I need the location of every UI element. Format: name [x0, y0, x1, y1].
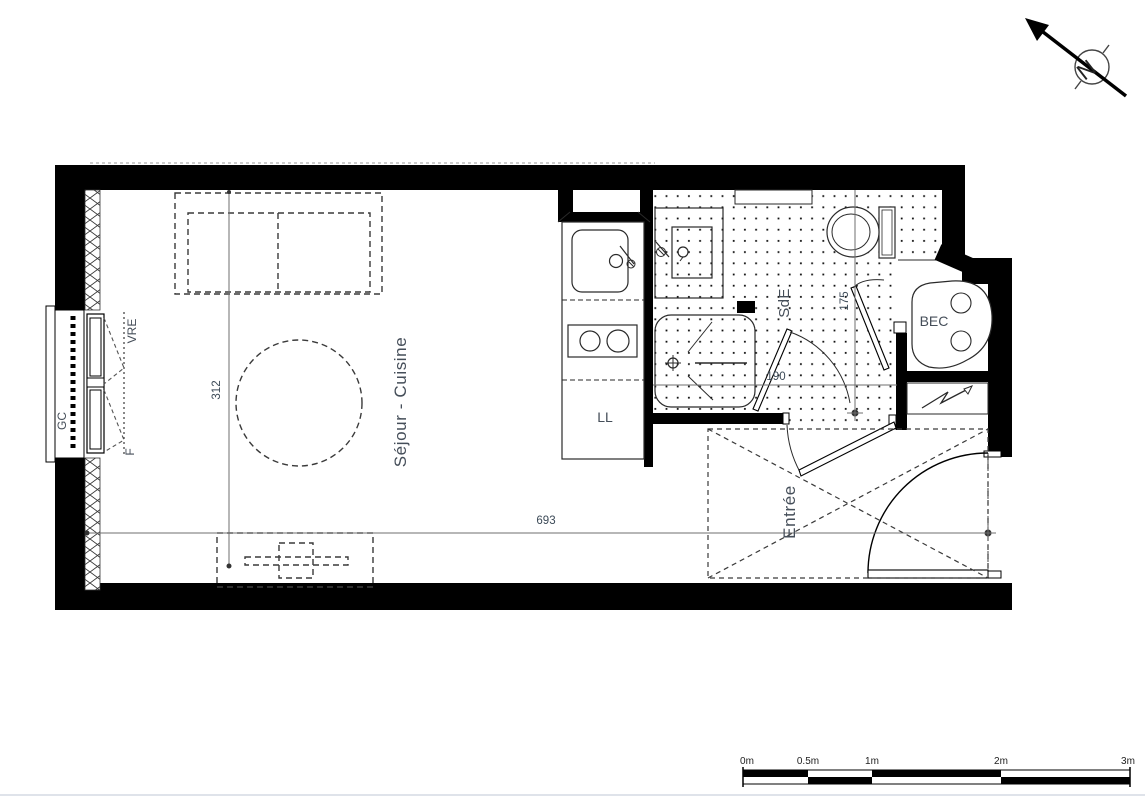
wall-shower-stub — [737, 301, 755, 313]
entrance-door — [868, 451, 1001, 578]
toilet — [827, 207, 895, 258]
wall-sde-bottom — [653, 413, 786, 424]
scale-bar: 0m 0.5m 1m 2m 3m — [740, 756, 1135, 787]
living-room-label: Séjour - Cuisine — [391, 337, 410, 468]
wall-left-upper — [55, 165, 85, 310]
guardrail-label: GC — [55, 412, 69, 430]
dim-total-length: 693 — [536, 515, 555, 527]
wall-bec-bottom — [897, 371, 990, 382]
scale-tick-05: 0.5m — [797, 756, 819, 767]
entrance-door-leaf — [868, 570, 988, 578]
sde-radiator — [735, 190, 812, 204]
scale-tick-3: 3m — [1121, 756, 1135, 767]
wall-bec-left — [896, 333, 907, 430]
window-swing-top — [104, 318, 124, 384]
door-sde-swing-arc — [787, 425, 800, 472]
scale-tick-1: 1m — [865, 756, 879, 767]
washing-machine-label: LL — [597, 409, 613, 425]
dim-sde-depth: 175 — [839, 291, 851, 310]
scale-tick-0: 0m — [740, 756, 754, 767]
entry-label: Entrée — [780, 485, 799, 539]
electrical-panel — [907, 383, 988, 414]
window-label: F — [123, 448, 137, 455]
window-swing-bottom — [104, 390, 124, 452]
door-sde-leaf — [799, 422, 896, 476]
wall-right-entry — [988, 258, 1012, 457]
guardrail-panel — [55, 310, 84, 458]
window-outer-sill — [46, 306, 55, 462]
roller-shutter-label: VRE — [125, 319, 139, 344]
entrance-door-swing-arc — [868, 453, 988, 573]
bed-sofa — [175, 193, 382, 294]
shower-room-label: SdE — [776, 288, 793, 318]
window-assembly: GC VRE F — [46, 306, 139, 462]
north-arrow-icon: N — [1025, 18, 1126, 96]
desk-and-chair — [217, 533, 373, 587]
dim-living-depth: 312 — [211, 380, 223, 399]
wall-top — [55, 165, 965, 190]
scale-tick-2: 2m — [994, 756, 1008, 767]
floor-plan-drawing: GC VRE F LL — [0, 0, 1145, 800]
dim-sde-width: 190 — [766, 371, 785, 383]
round-table — [236, 340, 362, 466]
floor-plan-page: GC VRE F LL — [0, 0, 1145, 800]
water-heater: BEC — [912, 281, 992, 368]
wall-bottom — [55, 583, 1012, 610]
water-heater-label: BEC — [920, 313, 949, 329]
wall-kitchen-sde — [644, 190, 653, 467]
kitchen-shaft-niche — [573, 190, 640, 212]
window-transom — [87, 378, 104, 387]
